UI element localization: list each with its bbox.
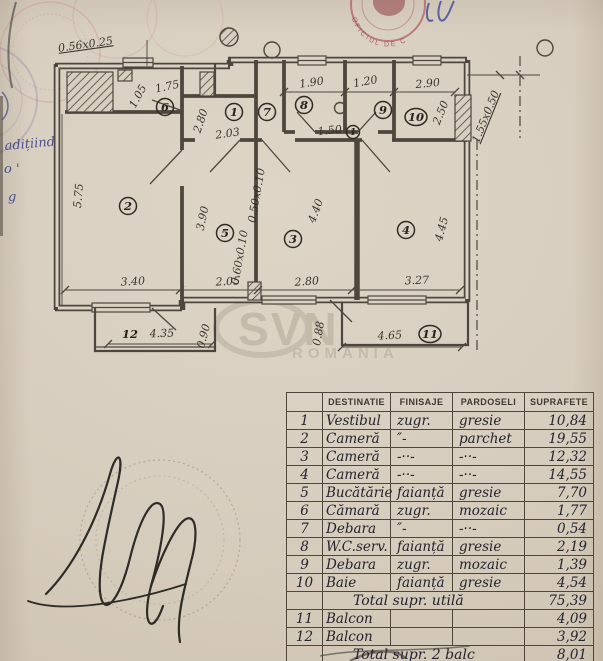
dimension-label: 5.75 [71, 183, 86, 209]
cell-area: 75,39 [525, 592, 594, 610]
table-header-cell: PARDOSELI [453, 393, 525, 412]
cell-finish: faianță [391, 538, 453, 556]
dimension-label: 1.20 [352, 73, 378, 90]
cell-row-number [287, 646, 323, 661]
cell-row-number: 4 [287, 466, 323, 484]
cell-flooring: gresie [453, 538, 525, 556]
dimension-label: 1.55x0.50 [469, 89, 502, 145]
scan-edge-artifact [0, 96, 3, 236]
red-stamp-arc-text: OFICIUL DE C [350, 16, 409, 48]
dimension-label: 3.90 [194, 205, 212, 232]
cell-row-number: 5 [287, 484, 323, 502]
room-marker: 12 [122, 327, 138, 341]
table-header-row: DESTINATIEFINISAJEPARDOSELISUPRAFETE [287, 393, 594, 412]
dimension-label: 4.65 [376, 328, 402, 342]
cell-finish: ″- [391, 520, 453, 538]
room-marker: 3 [285, 231, 302, 248]
cell-row-number: 2 [287, 430, 323, 448]
margin-note-line2: o ' [4, 162, 20, 177]
cell-destination: Cămară [323, 502, 391, 520]
cell-flooring: gresie [453, 412, 525, 430]
room-marker: 4 [398, 222, 415, 239]
room-schedule-table: DESTINATIEFINISAJEPARDOSELISUPRAFETE1Ves… [286, 392, 594, 661]
margin-note-line3: g [8, 190, 16, 205]
room-marker: 9 [375, 102, 392, 119]
dimension-label: 2.05 [214, 274, 240, 288]
dimension-label: 3.27 [404, 274, 429, 288]
table-header-cell: SUPRAFETE [525, 393, 594, 412]
cell-flooring: -··- [453, 448, 525, 466]
cell-area: 4,54 [525, 574, 594, 592]
dimension-label: 4.45 [432, 216, 451, 244]
cell-row-number: 3 [287, 448, 323, 466]
cell-destination: Balcon [323, 628, 391, 646]
interior-walls [65, 60, 467, 300]
table-row: 10Baiefaianțăgresie4,54 [287, 574, 594, 592]
table-row: 9Debarazugr.mozaic1,39 [287, 556, 594, 574]
cell-destination: Balcon [323, 610, 391, 628]
cell-flooring: mozaic [453, 502, 525, 520]
pen-marks [427, 1, 454, 21]
cell-destination: Cameră [323, 430, 391, 448]
table-row: 5Bucătăriefaianțăgresie7,70 [287, 484, 594, 502]
cell-area: 7,70 [525, 484, 594, 502]
dimension-label: 3.40 [120, 274, 145, 288]
cell-flooring [453, 610, 525, 628]
cell-row-number: 12 [287, 628, 323, 646]
table-row: 4Cameră-··--··-14,55 [287, 466, 594, 484]
cell-area: 1,77 [525, 502, 594, 520]
cell-finish [391, 610, 453, 628]
svg-text:1: 1 [350, 128, 356, 138]
cell-area: 10,84 [525, 412, 594, 430]
svg-text:9: 9 [379, 103, 387, 117]
cell-finish: -··- [391, 448, 453, 466]
cell-row-number: 8 [287, 538, 323, 556]
svg-text:12: 12 [122, 327, 138, 341]
dimension-label: 2.80 [190, 107, 210, 135]
table-total-row: Total supr. utilă75,39 [287, 592, 594, 610]
cell-finish: -··- [391, 466, 453, 484]
room-marker: 11 [419, 326, 441, 343]
cell-flooring: -··- [453, 520, 525, 538]
dimension-label: 0.56x0.25 [57, 34, 113, 55]
room-marker: 10 [405, 109, 427, 126]
margin-note-line1: adițiind [4, 135, 56, 154]
cell-finish: ″- [391, 430, 453, 448]
dimension-label: 1.75 [154, 78, 181, 96]
table-header-cell: DESTINATIE [323, 393, 391, 412]
cell-finish: faianță [391, 484, 453, 502]
cell-finish: zugr. [391, 556, 453, 574]
room-marker: 7 [259, 104, 276, 121]
table-row: 3Cameră-··--··-12,32 [287, 448, 594, 466]
cell-row-number: 1 [287, 412, 323, 430]
svg-text:7: 7 [263, 105, 271, 119]
cell-destination: Cameră [323, 448, 391, 466]
table-header-cell-empty [287, 393, 323, 412]
cell-destination: Cameră [323, 466, 391, 484]
watermark-subtext: ROMANIA [292, 345, 399, 362]
cell-finish [391, 628, 453, 646]
cell-destination: Debara [323, 520, 391, 538]
cell-area: 1,39 [525, 556, 594, 574]
cell-area: 0,54 [525, 520, 594, 538]
cell-flooring: mozaic [453, 556, 525, 574]
dimension-label: 2.03 [213, 125, 240, 141]
cell-area: 8,01 [525, 646, 594, 661]
cell-row-number: 11 [287, 610, 323, 628]
red-stamp: OFICIUL DE C [350, 0, 425, 48]
cell-area: 12,32 [525, 448, 594, 466]
dimension-label: 4.35 [148, 327, 174, 341]
cell-row-number: 6 [287, 502, 323, 520]
table-row: 7Debara″--··-0,54 [287, 520, 594, 538]
svg-text:10: 10 [408, 110, 424, 124]
svg-text:1: 1 [230, 105, 238, 119]
cell-finish: zugr. [391, 502, 453, 520]
cell-destination: W.C.serv. [323, 538, 391, 556]
svg-text:2: 2 [123, 199, 132, 213]
dimension-label: 2.90 [414, 76, 441, 91]
svg-text:6: 6 [161, 100, 169, 114]
dimension-label: 1.05 [126, 82, 149, 110]
table-row: 2Cameră″-parchet19,55 [287, 430, 594, 448]
table-header-cell: FINISAJE [391, 393, 453, 412]
cell-row-number [287, 592, 323, 610]
dimension-label: 2.80 [293, 274, 319, 289]
dimension-label: 2.50 [430, 99, 452, 128]
cell-total-label: Total supr. 2 balc [323, 646, 525, 661]
cell-area: 19,55 [525, 430, 594, 448]
cell-destination: Bucătărie [323, 484, 391, 502]
scanned-floor-plan-page: SVN ROMANIA [0, 0, 603, 661]
table-total-row: Total supr. 2 balc8,01 [287, 646, 594, 661]
svg-text:8: 8 [300, 98, 308, 112]
room-marker: 1 [226, 104, 243, 121]
cell-row-number: 9 [287, 556, 323, 574]
dimension-label: 1.50 [317, 123, 343, 138]
svg-text:11: 11 [422, 327, 438, 341]
cell-row-number: 7 [287, 520, 323, 538]
cell-area: 3,92 [525, 628, 594, 646]
round-stamp-faint [80, 460, 240, 620]
table-row: 11Balcon4,09 [287, 610, 594, 628]
table-row: 12Balcon3,92 [287, 628, 594, 646]
cell-flooring [453, 628, 525, 646]
cell-flooring: gresie [453, 484, 525, 502]
cell-destination: Vestibul [323, 412, 391, 430]
room-marker: 5 [217, 225, 234, 242]
signature [28, 458, 195, 642]
cell-total-label: Total supr. utilă [323, 592, 525, 610]
cell-flooring: gresie [453, 574, 525, 592]
cell-finish: zugr. [391, 412, 453, 430]
cell-area: 4,09 [525, 610, 594, 628]
cell-area: 14,55 [525, 466, 594, 484]
room-marker: 2 [120, 198, 137, 215]
watermark: SVN ROMANIA [216, 301, 399, 362]
margin-notes: adițiind o ' g [2, 2, 56, 205]
cell-area: 2,19 [525, 538, 594, 556]
cell-destination: Baie [323, 574, 391, 592]
dimension-label: 4.40 [305, 197, 326, 225]
cell-row-number: 10 [287, 574, 323, 592]
dimension-label: 0.50x0.10 [245, 167, 267, 224]
table-row: 1Vestibulzugr.gresie10,84 [287, 412, 594, 430]
cell-finish: faianță [391, 574, 453, 592]
table-row: 8W.C.serv.faianțăgresie2,19 [287, 538, 594, 556]
cell-flooring: -··- [453, 466, 525, 484]
svg-text:4: 4 [402, 223, 410, 237]
cell-destination: Debara [323, 556, 391, 574]
table-row: 6Cămarăzugr.mozaic1,77 [287, 502, 594, 520]
room-marker: 8 [296, 97, 313, 114]
svg-text:5: 5 [221, 226, 229, 240]
cell-flooring: parchet [453, 430, 525, 448]
svg-text:3: 3 [289, 232, 297, 246]
dimension-label: 1.90 [298, 74, 324, 90]
